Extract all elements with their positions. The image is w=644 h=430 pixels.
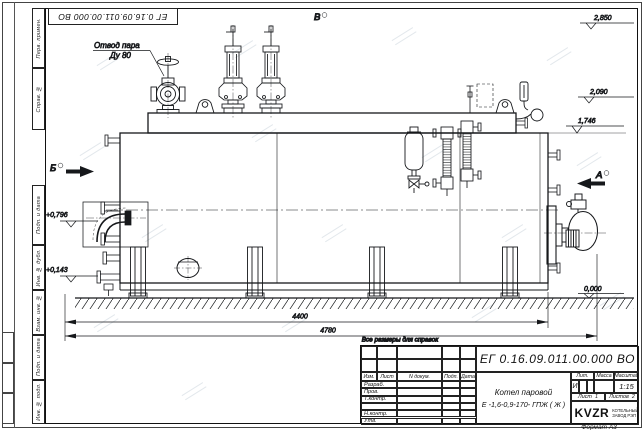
tb-cell <box>361 346 377 359</box>
tb-cell <box>587 380 594 393</box>
tb-cell <box>442 418 460 426</box>
sheets-value: 2 <box>632 394 635 400</box>
tb-cell <box>442 381 460 388</box>
lifting-lug-right <box>496 100 514 113</box>
elevation-marks: 2,850 2,090 1,746 0,000 +0,796 +0,14 <box>46 15 634 298</box>
sheet-value: 1 <box>595 394 598 400</box>
tb-cell <box>442 410 460 417</box>
boiler-shell <box>106 113 560 290</box>
tb-col-list: Лист <box>377 372 397 381</box>
burner-assembly <box>544 194 606 264</box>
rear-wall-stubs <box>548 150 560 273</box>
sheet-label: Лист <box>578 394 592 400</box>
tb-cell <box>460 381 476 388</box>
tb-cell <box>579 380 587 393</box>
tb-sheet: Лист 1 <box>571 393 605 401</box>
tb-col-date: Дата <box>460 372 476 381</box>
elevation-2850: 2,850 <box>580 15 634 29</box>
tb-row-label: Н.контр. <box>361 410 397 417</box>
tb-scale-header: Масштаб <box>614 372 639 380</box>
tb-cell <box>397 410 442 417</box>
svg-text:2,850: 2,850 <box>593 15 612 22</box>
tb-mass-header: Масса <box>594 372 614 380</box>
ground-hatching <box>75 298 634 309</box>
tb-cell <box>460 418 476 426</box>
tb-cell <box>397 388 442 395</box>
tb-col-podp: Подп. <box>442 372 460 381</box>
reference-note: Все размеры для справок <box>362 336 440 344</box>
gas-elbow-detail-box <box>83 202 148 247</box>
tb-cell <box>442 359 460 372</box>
kvzr-logo-text: KVZR <box>575 406 610 420</box>
svg-text:2,090: 2,090 <box>589 89 608 96</box>
product-name-line2: Е -1,6-0,9-170- ГПЖ ( Ж ) <box>482 400 565 409</box>
view-arrow-v: В <box>314 12 327 23</box>
tb-cell <box>397 359 442 372</box>
tb-lit-header: Лит. <box>571 372 594 380</box>
elevation-1746: 1,746 <box>548 118 626 133</box>
tb-row-label: Разраб. <box>361 381 397 388</box>
sheets-label: Листов <box>609 394 629 400</box>
elevation-0796: +0,796 <box>46 212 98 227</box>
tb-cell <box>442 346 460 359</box>
hidden-component-dashed <box>477 84 493 107</box>
tb-cell <box>460 359 476 372</box>
view-label-v: В <box>314 12 321 23</box>
drawing-sheet: Перв. примен. Справ. № Подп. и дата Инв.… <box>0 0 644 430</box>
water-gauge-glass-2 <box>461 121 481 188</box>
tb-row-label: Утв. <box>361 418 397 426</box>
tb-col-ndoc: N докум. <box>397 372 442 381</box>
kvzr-logo-subtext: КОТЕЛЬНЫЙ ЗАВОД РЭП <box>612 408 638 418</box>
tb-lit-value: И <box>571 380 579 393</box>
lifting-lug-left <box>196 100 214 113</box>
tb-product-name: Котел паровой Е -1,6-0,9-170- ГПЖ ( Ж ) <box>476 372 571 425</box>
tb-row-label <box>361 403 397 410</box>
tb-cell <box>397 396 442 403</box>
dim-4400-text: 4400 <box>292 314 308 321</box>
svg-text:1,746: 1,746 <box>578 118 596 125</box>
svg-text:0,000: 0,000 <box>584 286 602 293</box>
tb-row-label: Т.контр. <box>361 396 397 403</box>
tb-cell <box>460 388 476 395</box>
tb-logo-cell: KVZR КОТЕЛЬНЫЙ ЗАВОД РЭП <box>571 401 639 425</box>
tb-cell <box>397 346 442 359</box>
drum-end-stubs <box>516 118 528 128</box>
dim-4780-text: 4780 <box>320 328 336 335</box>
tb-cell <box>460 410 476 417</box>
title-block: Изм. Лист N докум. Подп. Дата Разраб. Пр… <box>360 345 638 424</box>
tb-row-label: Пров. <box>361 388 397 395</box>
tb-cell <box>361 359 377 372</box>
callout-line2: Ду 80 <box>109 51 131 60</box>
handhole-oval <box>174 256 202 280</box>
steam-outlet-valve <box>151 53 185 118</box>
svg-text:+0,143: +0,143 <box>46 267 68 274</box>
water-gauge-glass-1 <box>433 127 461 196</box>
tb-doc-number: ЕГ 0.16.09.011.00.000 ВО <box>476 346 639 372</box>
tb-cell <box>460 396 476 403</box>
view-label-a: А <box>595 170 602 181</box>
elevation-0143: +0,143 <box>46 267 98 282</box>
tb-cell <box>397 381 442 388</box>
tb-sheets: Листов 2 <box>605 393 639 401</box>
tb-mass-value <box>594 380 614 393</box>
level-probe <box>467 86 474 113</box>
view-arrow-b: Б <box>50 163 94 177</box>
view-label-b: Б <box>50 163 56 174</box>
safety-valve-1 <box>219 25 247 118</box>
elevation-0000: 0,000 <box>578 286 624 298</box>
tb-cell <box>377 359 397 372</box>
view-arrow-a: А <box>577 170 609 189</box>
logo-sub-line2: ЗАВОД РЭП <box>612 413 638 418</box>
tb-cell <box>442 388 460 395</box>
tb-cell <box>460 346 476 359</box>
format-label: Формат А3 <box>560 424 638 430</box>
svg-text:+0,796: +0,796 <box>46 212 68 219</box>
tb-cell <box>397 418 442 426</box>
safety-valve-2 <box>257 25 285 118</box>
callout-line1: Отвод пара <box>94 41 140 50</box>
pressure-gauge-siphon <box>516 82 543 121</box>
elevation-2090: 2,090 <box>578 89 634 103</box>
tb-cell <box>460 403 476 410</box>
tb-cell <box>442 403 460 410</box>
tb-cell <box>397 403 442 410</box>
product-name-line1: Котел паровой <box>495 388 552 397</box>
water-column-vessel <box>405 127 429 193</box>
tb-cell <box>377 346 397 359</box>
steam-outlet-callout: Отвод пара Ду 80 <box>93 41 164 76</box>
tb-col-izm: Изм. <box>361 372 377 381</box>
tb-cell <box>442 396 460 403</box>
tb-scale-value: 1:15 <box>614 380 639 393</box>
